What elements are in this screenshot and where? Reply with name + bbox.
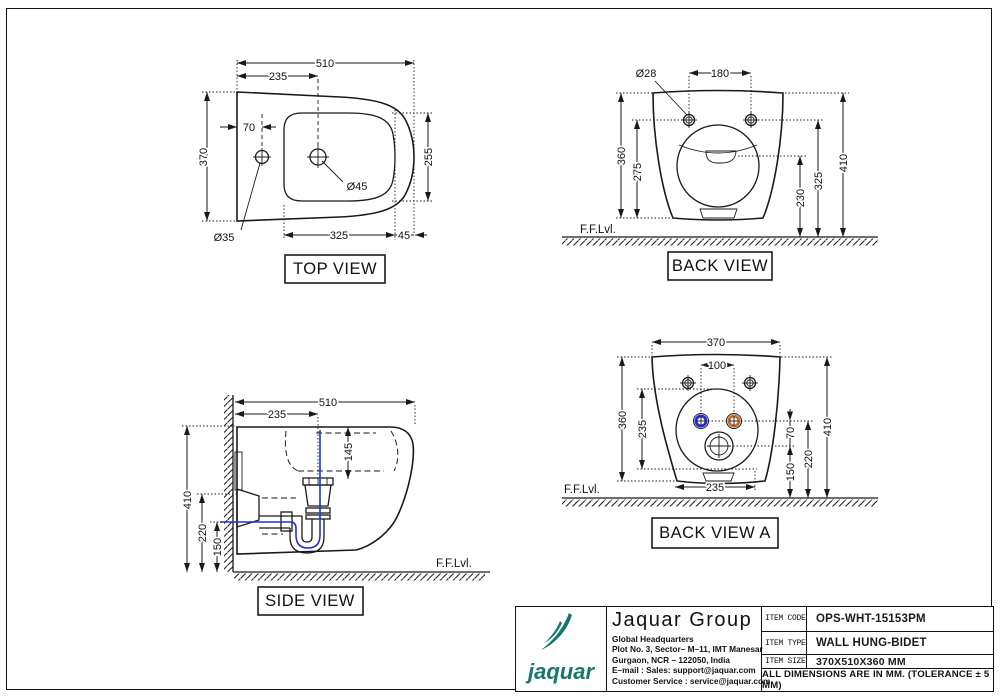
- back-view-outline: [653, 91, 783, 221]
- title-block: jaquar Jaquar Group Global Headquarters …: [515, 606, 994, 692]
- side-dim-150: 150: [212, 538, 224, 556]
- top-dim-dia35: Ø35: [214, 232, 235, 244]
- address-line: E–mail : Sales: support@jaquar.com: [612, 665, 761, 675]
- side-dim-145: 145: [343, 443, 355, 461]
- back-view-a-label: BACK VIEW A: [652, 518, 778, 548]
- side-view-wall-outlet: [235, 452, 259, 527]
- top-view-tap-hole: [253, 148, 271, 166]
- top-dim-235: 235: [269, 71, 287, 83]
- item-type-value: WALL HUNG-BIDET: [807, 632, 993, 654]
- back-view-a-cold-water-inlet: [694, 414, 709, 429]
- back-dim-dia28: Ø28: [636, 68, 657, 80]
- side-dim-510: 510: [319, 397, 337, 409]
- svg-text:SIDE VIEW: SIDE VIEW: [265, 592, 355, 610]
- backa-dim-360: 360: [617, 411, 629, 429]
- backa-dim-220: 220: [803, 450, 815, 468]
- back-dim-410: 410: [838, 154, 850, 172]
- svg-text:TOP VIEW: TOP VIEW: [293, 260, 377, 278]
- backa-dim-150: 150: [785, 463, 797, 481]
- top-view-label: TOP VIEW: [285, 255, 385, 283]
- side-view-floor-hatch: [234, 574, 485, 581]
- jaquar-logo: jaquar: [517, 609, 605, 689]
- item-size-label: ITEM SIZE: [762, 655, 807, 668]
- back-view-fixing-hole-right: [743, 112, 759, 128]
- back-view-a-floor-hatch: [562, 500, 878, 507]
- back-dim-360: 360: [616, 147, 628, 165]
- back-dim-230: 230: [795, 189, 807, 207]
- address-line: Global Headquarters: [612, 634, 761, 644]
- item-info: ITEM CODE OPS-WHT-15153PM ITEM TYPE WALL…: [762, 607, 993, 691]
- company-cell: Jaquar Group Global Headquarters Plot No…: [607, 607, 762, 691]
- side-view-label: SIDE VIEW: [258, 587, 363, 615]
- backa-dim-410: 410: [822, 418, 834, 436]
- back-view-a: F.F.Lvl. 370 100 360 235 70: [562, 337, 878, 548]
- top-view: 510 235 370 70 255 325 45 Ø45: [198, 58, 435, 283]
- item-code-label: ITEM CODE: [762, 607, 807, 631]
- address-line: Plot No. 3, Sector– M–11, IMT Manesar: [612, 644, 761, 654]
- logo-wordmark: jaquar: [525, 659, 595, 684]
- side-view-wall-hatch: [224, 395, 233, 572]
- back-view-label: BACK VIEW: [668, 252, 772, 280]
- item-code-value: OPS-WHT-15153PM: [807, 607, 993, 631]
- back-view-ffl: F.F.Lvl.: [580, 224, 616, 236]
- technical-drawing: 510 235 370 70 255 325 45 Ø45: [0, 0, 1000, 698]
- side-dim-235: 235: [268, 409, 286, 421]
- side-dim-220: 220: [197, 524, 209, 542]
- tolerance-note: ALL DIMENSIONS ARE IN MM. (TOLERANCE ± 5…: [762, 669, 993, 691]
- back-view-a-drain: [705, 432, 733, 460]
- side-view: F.F.Lvl.: [182, 395, 490, 615]
- back-dim-275: 275: [632, 163, 644, 181]
- back-view-fixing-hole-left: [681, 112, 697, 128]
- address-line: Customer Service : service@jaquar.com: [612, 676, 761, 686]
- side-dim-410: 410: [182, 491, 194, 509]
- address-line: Gurgaon, NCR – 122050, India: [612, 655, 761, 665]
- top-dim-dia45: Ø45: [347, 181, 368, 193]
- back-dim-325: 325: [813, 172, 825, 190]
- top-dim-45: 45: [398, 230, 410, 242]
- back-view-a-outline: [652, 355, 780, 484]
- top-dim-325: 325: [330, 230, 348, 242]
- item-code-row: ITEM CODE OPS-WHT-15153PM: [762, 607, 993, 632]
- item-type-label: ITEM TYPE: [762, 632, 807, 654]
- back-view-a-fixing-hole-right: [742, 375, 758, 391]
- top-dim-370: 370: [198, 148, 210, 166]
- back-dim-180: 180: [711, 68, 729, 80]
- top-dim-255: 255: [423, 148, 435, 166]
- company-address: Global Headquarters Plot No. 3, Sector– …: [612, 634, 761, 686]
- svg-text:BACK VIEW A: BACK VIEW A: [659, 524, 771, 542]
- logo-cell: jaquar: [516, 607, 607, 691]
- item-type-row: ITEM TYPE WALL HUNG-BIDET: [762, 632, 993, 655]
- back-view-a-ffl: F.F.Lvl.: [564, 484, 600, 496]
- backa-dim-235-left: 235: [637, 420, 649, 438]
- top-dim-510: 510: [316, 58, 334, 70]
- top-dim-70: 70: [243, 122, 255, 134]
- backa-dim-70: 70: [785, 427, 797, 439]
- side-view-ffl: F.F.Lvl.: [436, 558, 472, 570]
- svg-text:BACK VIEW: BACK VIEW: [672, 257, 768, 275]
- backa-dim-235-bottom: 235: [706, 482, 724, 494]
- drawing-sheet: 510 235 370 70 255 325 45 Ø45: [0, 0, 1000, 698]
- company-name: Jaquar Group: [612, 609, 761, 632]
- back-view-a-hot-water-inlet: [727, 414, 742, 429]
- back-view: F.F.Lvl. Ø28 180 360 275 230 325 410: [562, 68, 878, 280]
- item-size-value: 370X510X360 MM: [807, 655, 993, 668]
- backa-dim-370: 370: [707, 337, 725, 349]
- item-size-row: ITEM SIZE 370X510X360 MM: [762, 655, 993, 669]
- side-view-outline: [237, 427, 413, 554]
- backa-dim-100: 100: [708, 360, 726, 372]
- back-view-floor-hatch: [562, 239, 878, 246]
